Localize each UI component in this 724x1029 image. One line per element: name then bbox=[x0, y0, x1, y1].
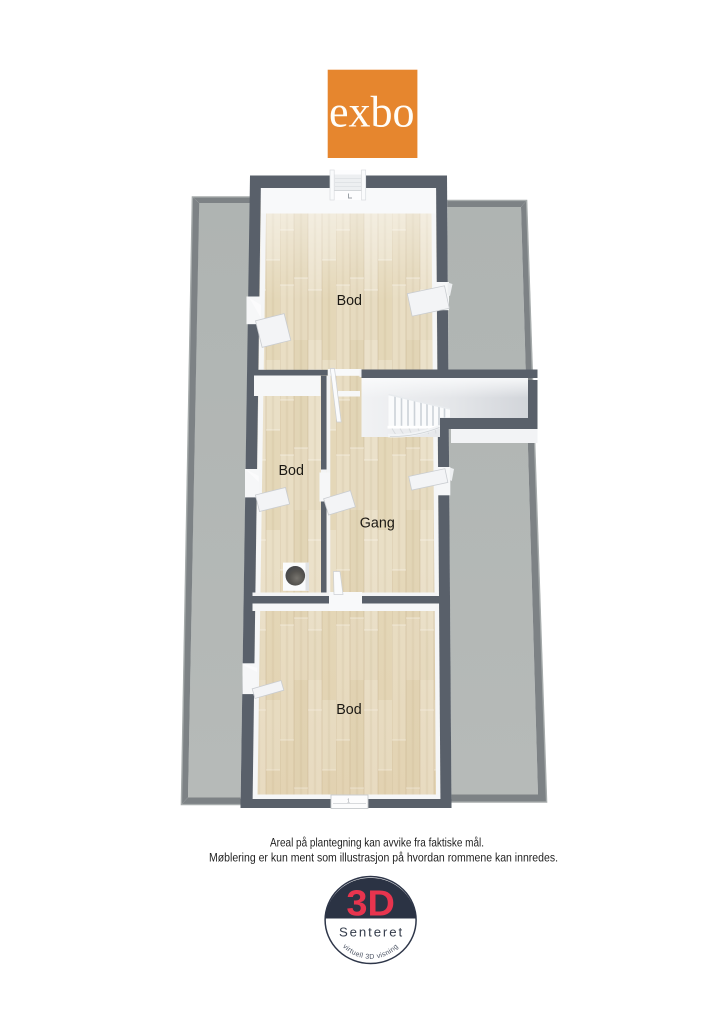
svg-text:Møblering er kun ment som illu: Møblering er kun ment som illustrasjon p… bbox=[209, 851, 558, 865]
svg-text:Gang: Gang bbox=[360, 516, 395, 532]
svg-text:exbo: exbo bbox=[329, 88, 415, 137]
svg-text:Senteret: Senteret bbox=[339, 924, 404, 939]
svg-text:3D: 3D bbox=[346, 883, 395, 924]
svg-text:Bod: Bod bbox=[336, 702, 361, 718]
svg-text:1: 1 bbox=[347, 799, 350, 805]
svg-text:Bod: Bod bbox=[278, 463, 303, 479]
svg-text:Bod: Bod bbox=[337, 293, 362, 309]
svg-text:Areal på plantegning kan avvik: Areal på plantegning kan avvike fra fakt… bbox=[270, 836, 484, 850]
